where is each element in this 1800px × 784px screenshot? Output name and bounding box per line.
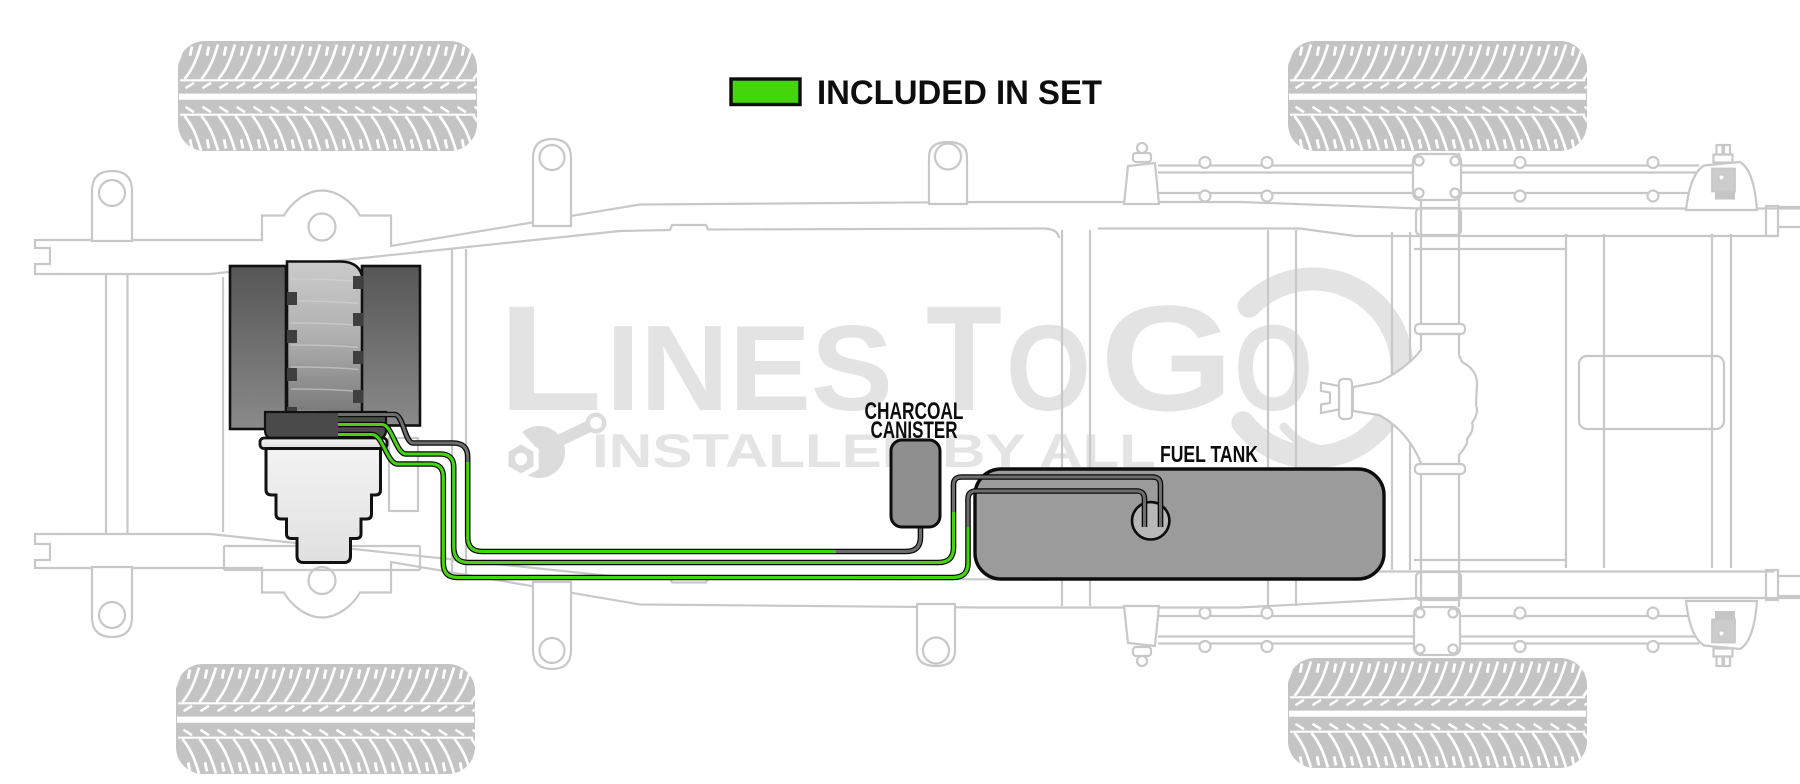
- svg-text:CANISTER: CANISTER: [871, 417, 958, 444]
- svg-text:O: O: [1006, 300, 1091, 436]
- svg-text:INES: INES: [606, 300, 893, 436]
- svg-text:G: G: [1100, 274, 1234, 442]
- svg-text:L: L: [498, 275, 602, 443]
- svg-text:INCLUDED IN SET: INCLUDED IN SET: [817, 74, 1102, 112]
- svg-text:FUEL TANK: FUEL TANK: [1160, 441, 1258, 467]
